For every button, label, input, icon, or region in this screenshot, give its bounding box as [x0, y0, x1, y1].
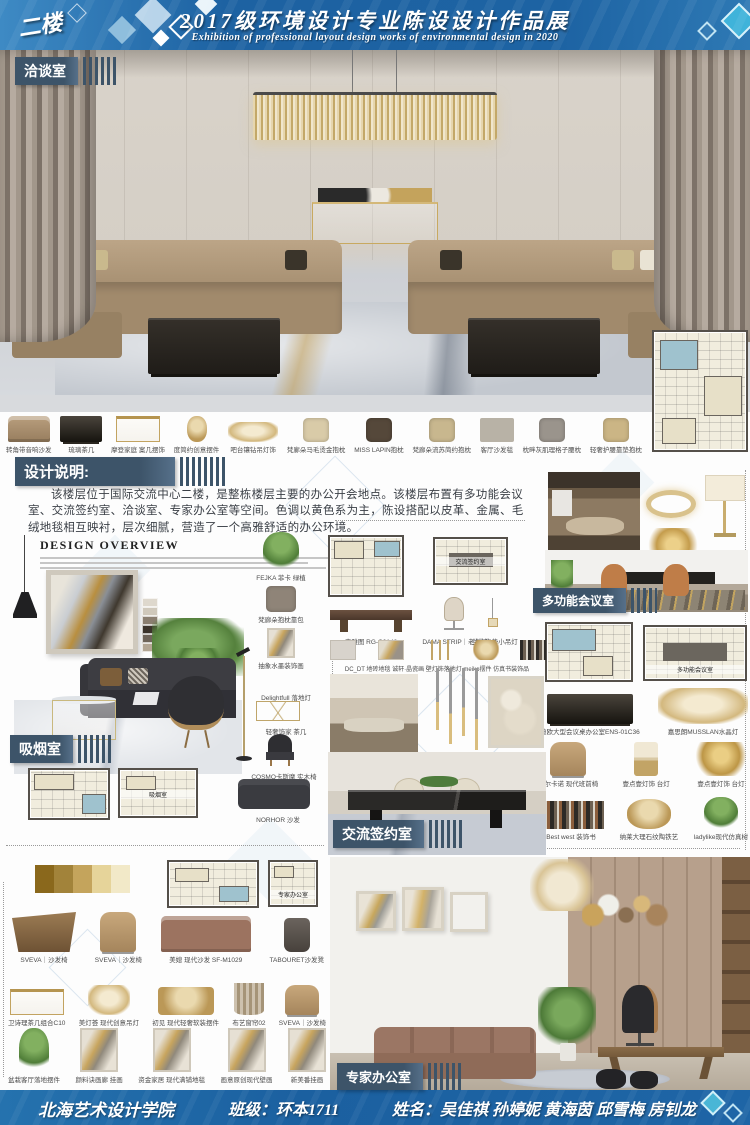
plan-room: [34, 774, 74, 790]
plan-room: [82, 794, 106, 814]
pillow-icon: [128, 668, 148, 684]
decor: [266, 752, 294, 760]
accessory-thumbs: [330, 640, 546, 660]
decor: [24, 535, 25, 593]
catalog-item-label: 美媳 现代沙发 SF-M1029: [169, 954, 242, 964]
catalog-item-thumb: [267, 628, 295, 658]
palette-swatch: [142, 598, 158, 607]
catalog-item: 美媳 现代沙发 SF-M1029: [161, 916, 251, 964]
furniture-item: 转角带音响沙发: [6, 416, 52, 454]
catalog-item: 科尔卡诺 现代班前椅: [538, 742, 598, 788]
plan-caption: 交流签约室: [435, 557, 506, 566]
decor: [449, 668, 452, 744]
furniture-item-thumb: [603, 418, 629, 442]
decor: [453, 621, 455, 628]
expert-office-render: [330, 857, 750, 1090]
furniture-item-thumb: [187, 416, 207, 442]
room-label-text: 专家办公室: [337, 1063, 423, 1090]
catalog-item-label: Best west 装饰书: [546, 831, 595, 841]
catalog-item: 资金家居 现代满铺地毯: [138, 1028, 205, 1084]
decor: [352, 50, 353, 95]
wall-art: [450, 892, 488, 932]
design-overview-heading: DESIGN OVERVIEW: [40, 538, 179, 553]
catalog-item-label: 纳莱大理石纹陶铁艺: [620, 831, 679, 841]
furniture-item: 度简约创意摆件: [174, 416, 220, 454]
furniture-item: 梵廊朵流苏简约抱枕: [412, 418, 471, 454]
plan-room: [552, 629, 596, 651]
decor: [462, 668, 465, 736]
coffee-table: [148, 318, 280, 374]
design-notes-label-text: 设计说明:: [15, 457, 175, 486]
catalog-item-thumb: [694, 742, 748, 776]
pillow-icon: [440, 250, 462, 270]
decor: [560, 1043, 576, 1061]
furniture-item-label: 琉璃茶几: [68, 444, 94, 454]
decor: [83, 57, 119, 85]
catalog-item-label: 颜料诀画廊 挂画: [75, 1074, 122, 1084]
plan-room: [126, 776, 156, 790]
room-label-signing: 交流签约室: [333, 820, 465, 848]
smoking-item-label: NORHOR 沙发: [248, 814, 308, 824]
design-notes-label: 设计说明:: [15, 457, 228, 486]
catalog-item: 梵廊朵抱枕靠包: [238, 586, 324, 624]
catalog-item-thumb: [704, 797, 738, 829]
catalog-item: 纳莱大理石纹陶铁艺: [620, 799, 679, 841]
decor: [6, 845, 324, 846]
furniture-item: 轻奢护腰靠垫抱枕: [590, 418, 642, 454]
multifunction-items-row3: Best west 装饰书 纳莱大理石纹陶铁艺 ladylike现代仿真树: [538, 797, 748, 841]
art-thumb: [378, 640, 404, 660]
floor-plan-thumbnail: [28, 768, 110, 820]
furniture-item-thumb: [8, 416, 50, 442]
decor: [344, 718, 404, 732]
furniture-item-label: 梵廊朵马毛烫金抱枕: [287, 444, 346, 454]
catalog-item: 新美番挂画: [288, 1028, 326, 1084]
ring-chandelier: [642, 482, 700, 528]
room-label-text: 交流签约室: [333, 820, 424, 848]
footer-banner: 北海艺术设计学院 班级：环本1711 姓名：吴佳祺 孙婷妮 黄海茵 邱雪梅 房钊…: [0, 1090, 750, 1125]
catalog-item: 初见 现代轻奢软装摆件: [152, 987, 219, 1027]
plan-caption: 吸烟室: [120, 790, 196, 799]
decor: [436, 668, 439, 730]
catalog-item-thumb: [627, 799, 671, 829]
conference-table-thumb: [330, 602, 412, 632]
floor-plan-thumbnail: [167, 860, 259, 908]
decor: [428, 1063, 464, 1090]
plan-caption: 专家办公室: [270, 890, 316, 899]
catalog-item-label: TABOURET沙发凳: [270, 954, 324, 964]
decor: [396, 50, 397, 95]
plant-icon: [420, 776, 458, 787]
decor: [330, 610, 412, 620]
catalog-item-label: 抽象水墨装饰画: [258, 660, 304, 670]
decor: [429, 820, 465, 848]
room-label-expert: 专家办公室: [337, 1063, 464, 1090]
room-label-text: 多功能会议室: [533, 588, 626, 613]
wire-coffee-table: [52, 700, 116, 740]
floor-plan-thumbnail: 吸烟室: [118, 768, 198, 818]
floor-plan-thumbnail: 专家办公室: [268, 860, 318, 907]
catalog-item-thumb: [284, 918, 310, 952]
catalog-item-thumb: [285, 985, 319, 1015]
stool-icon: [596, 1069, 626, 1089]
furniture-item-thumb: [60, 416, 102, 442]
curtain-left: [0, 50, 96, 342]
multifunction-items-row2: 科尔卡诺 现代班前椅 壹点壹灯饰 台灯 壹点壹灯饰 台灯: [538, 742, 748, 788]
stool-icon: [630, 1071, 658, 1089]
decor: [714, 533, 736, 537]
gold-palette: [35, 865, 130, 893]
decor: [699, 1057, 712, 1079]
catalog-item: 美灯荟 现代创意吊灯: [79, 985, 139, 1027]
coffee-table: [468, 318, 600, 374]
decor: [540, 848, 740, 849]
metal-circles-wall-decor: [582, 885, 670, 935]
small-pendant-thumb: [486, 598, 500, 630]
decor: [270, 760, 272, 766]
console-table: [312, 202, 438, 244]
furniture-item: 客厅沙发毯: [480, 418, 514, 454]
diamond-icon: [723, 1103, 743, 1123]
furniture-item: 吧台镶钻吊灯饰: [228, 422, 278, 454]
conference-room-photo: [330, 674, 418, 754]
decor: [243, 656, 245, 758]
decor: [78, 735, 114, 763]
furniture-item: 摩登家庭 案几摆饰: [111, 416, 165, 454]
plan-room: [219, 886, 249, 902]
plan-room: [274, 866, 294, 878]
catalog-item-label: 科尔卡诺 现代班前椅: [538, 778, 598, 788]
catalog-item-thumb: [658, 688, 748, 724]
crystal-chandelier: [253, 92, 497, 140]
catalog-item: SVEVA｜沙发椅: [95, 912, 142, 964]
catalog-item: FEJKA 菲卡 绿植: [238, 532, 324, 582]
wood-chair-icon: [262, 734, 298, 766]
wire-table-icon: [256, 701, 300, 721]
palette-swatch: [142, 607, 158, 616]
catalog-item-label: 画意原创现代壁画: [221, 1074, 273, 1084]
decor: [598, 1047, 724, 1057]
furniture-item-label: 客厅沙发毯: [481, 444, 514, 454]
console-decor-items: [318, 188, 432, 202]
footer-names: 姓名：吴佳祺 孙婷妮 黄海茵 邱雪梅 房钊龙: [392, 1096, 696, 1120]
catalog-item-label: 壹点壹灯饰 台灯: [697, 778, 744, 788]
catalog-item: 颜料诀画廊 挂画: [75, 1028, 122, 1084]
furniture-item-thumb: [480, 418, 514, 442]
catalog-item-label: 卫诗理茶几组合C10: [8, 1017, 65, 1027]
catalog-item-thumb: [88, 985, 130, 1015]
furniture-item-label: 度简约创意摆件: [174, 444, 220, 454]
catalog-item: Best west 装饰书: [538, 801, 604, 841]
plan-room: [334, 541, 364, 559]
decor: [538, 987, 596, 1045]
catalog-item-thumb: [266, 586, 296, 612]
furniture-item: 枕畔灰肌理格子腰枕: [523, 418, 582, 454]
plan-room: [662, 418, 696, 444]
catalog-item-label: FEJKA 菲卡 绿植: [256, 572, 305, 582]
floor-badge: 二楼: [16, 5, 64, 43]
furniture-strip: 转角带音响沙发 琉璃茶几 摩登家庭 案几摆饰 度简约创意摆件 吧台镶钻吊灯饰: [6, 416, 642, 454]
catalog-item-thumb: [100, 912, 136, 952]
catalog-item: ladylike现代仿真树: [694, 797, 748, 841]
decor: [236, 756, 252, 761]
catalog-item: TABOURET沙发凳: [270, 918, 324, 964]
books-thumb: [520, 640, 546, 660]
catalog-item: 画意原创现代壁画: [221, 1028, 273, 1084]
decor: [622, 985, 658, 1033]
catalog-item: 卫诗理茶几组合C10: [8, 989, 65, 1027]
decor: [180, 457, 228, 486]
decor: [723, 501, 726, 533]
pillow-icon: [100, 668, 122, 686]
furniture-item: 梵廊朵马毛烫金抱枕: [287, 418, 346, 454]
catalog-item-thumb: [161, 916, 251, 952]
catalog-item-label: SVEVA｜沙发椅: [20, 954, 67, 964]
palette-swatch: [35, 865, 54, 893]
pillow-icon: [285, 250, 307, 270]
negotiation-room-photo: [0, 50, 750, 412]
room-label-smoking: 吸烟室: [10, 735, 114, 763]
meeting-room-photo: [548, 472, 640, 560]
decor: [705, 475, 745, 501]
room-label-negotiation: 洽谈室: [15, 57, 119, 85]
catalog-item-thumb: [80, 1028, 118, 1072]
catalog-item-thumb: [158, 987, 214, 1015]
plan-room: [175, 868, 209, 882]
furniture-item-label: MISS LAPIN抱枕: [354, 444, 403, 454]
expert-items-row3: 盆栽客厅落地摆件 颜料诀画廊 挂画 资金家居 现代满铺地毯 画意原创现代壁画 新…: [8, 1028, 326, 1084]
furniture-item-thumb: [539, 418, 565, 442]
catalog-item-label: 盆栽客厅落地摆件: [8, 1074, 60, 1084]
catalog-item-label: 壹点壹灯饰 台灯: [623, 778, 670, 788]
catalog-item-thumb: [288, 1028, 326, 1072]
furniture-item-label: 吧台镶钻吊灯饰: [230, 444, 276, 454]
catalog-item-thumb: [634, 742, 658, 776]
wall-art: [402, 887, 444, 931]
decor: [488, 618, 498, 627]
decor: [475, 668, 478, 750]
furniture-item-label: 摩登家庭 案几摆饰: [111, 444, 165, 454]
boss-chair-thumb: [440, 597, 468, 631]
catalog-item-label: 梵廊朵抱枕靠包: [258, 614, 304, 624]
decor: [492, 598, 493, 618]
catalog-item: 嘉思朗MUSSLAN水晶灯: [658, 688, 748, 736]
pendant-lights-thumb: [430, 668, 482, 756]
poster-title: 2017级环境设计专业陈设设计作品展: [0, 5, 750, 35]
decor: [566, 517, 624, 535]
catalog-item-label: ladylike现代仿真树: [694, 831, 748, 841]
design-notes-paragraph: 该楼层位于国际交流中心二楼，是整栋楼层主要的办公开会地点。该楼层布置有多功能会议…: [28, 487, 533, 536]
floor-plan-thumbnail: [545, 622, 633, 682]
catalog-item-label: 资金家居 现代满铺地毯: [138, 1074, 205, 1084]
floor-lamp: [234, 650, 254, 768]
decor: [394, 620, 402, 632]
catalog-item-label: SVEVA｜沙发椅: [95, 954, 142, 964]
decor: [444, 628, 464, 630]
furniture-item-label: 枕畔灰肌理格子腰枕: [523, 444, 582, 454]
decor: [3, 882, 4, 1077]
catalog-item: SVEVA｜沙发椅: [279, 985, 326, 1027]
laptop-icon: [133, 692, 160, 705]
furniture-item-thumb: [303, 418, 329, 442]
relief-artwork: [488, 676, 544, 748]
room-label-multifunction: 多功能会议室: [533, 588, 657, 613]
decor: [490, 810, 502, 828]
furniture-item-thumb: [116, 416, 160, 442]
potted-plant: [538, 987, 596, 1063]
wall-art: [356, 891, 396, 931]
palette-swatch: [73, 865, 92, 893]
catalog-item: SVEVA｜沙发椅: [12, 912, 76, 964]
catalog-item-thumb: [10, 989, 64, 1015]
palette-swatch: [111, 865, 130, 893]
header-banner: 二楼 2017级环境设计专业陈设设计作品展 Exhibition of prof…: [0, 0, 750, 50]
catalog-item-thumb: [547, 694, 633, 724]
footer-school: 北海艺术设计学院: [38, 1096, 174, 1121]
decor: [288, 760, 290, 766]
catalog-item-thumb: [19, 1028, 49, 1072]
exhibition-poster: 二楼 2017级环境设计专业陈设设计作品展 Exhibition of prof…: [0, 0, 750, 1125]
catalog-item-thumb: [153, 1028, 191, 1072]
executive-chair: [614, 985, 666, 1047]
poster-subtitle: Exhibition of professional layout design…: [0, 32, 750, 43]
catalog-item: 布艺窗帘02: [232, 983, 265, 1027]
catalog-item-label: 布艺窗帘02: [232, 1017, 265, 1027]
catalog-item-thumb: [234, 983, 264, 1015]
catalog-item: 迪欧大型会议桌办公室ENS-01C36: [540, 694, 640, 736]
catalog-item-label: SVEVA｜沙发椅: [279, 1017, 326, 1027]
furniture-item-thumb: [429, 418, 455, 442]
plan-room: [660, 340, 698, 370]
floor-plan-thumbnail: [328, 535, 404, 597]
furniture-item-thumb: [366, 418, 392, 442]
catalog-item-thumb: [263, 532, 299, 570]
figurine-thumb: [473, 640, 499, 660]
marble-floor: [0, 395, 750, 412]
catalog-item-label: 迪欧大型会议桌办公室ENS-01C36: [540, 726, 640, 736]
furniture-item-label: 转角带音响沙发: [6, 444, 52, 454]
furniture-item-label: 轻奢护腰靠垫抱枕: [590, 444, 642, 454]
plan-room: [663, 643, 727, 661]
lights-thumb: [425, 640, 451, 660]
decor: [444, 597, 464, 621]
pillow-icon: [612, 250, 634, 270]
decor: [631, 588, 657, 613]
catalog-item-label: 新美番挂画: [291, 1074, 324, 1084]
room-label-text: 洽谈室: [15, 57, 78, 85]
multifunction-items-row1: 迪欧大型会议桌办公室ENS-01C36 嘉思朗MUSSLAN水晶灯: [540, 688, 748, 736]
catalog-item-label: 初见 现代轻奢软装摆件: [152, 1017, 219, 1027]
expert-items-row2: 卫诗理茶几组合C10 美灯荟 现代创意吊灯 初见 现代轻奢软装摆件 布艺窗帘02…: [8, 983, 326, 1027]
abstract-artwork: [46, 570, 138, 654]
shell-chair: [168, 676, 224, 730]
office-chair-icon: [663, 564, 689, 596]
catalog-item-thumb: [550, 742, 586, 776]
furniture-item-thumb: [228, 422, 278, 442]
catalog-item-thumb: [12, 912, 76, 952]
floor-plan-thumbnail: 多功能会议室: [643, 625, 747, 681]
decor: [268, 734, 292, 754]
plan-room: [704, 376, 742, 416]
pendant-lamp-icon: [13, 592, 37, 618]
catalog-item: 壹点壹灯饰 台灯: [694, 742, 748, 788]
floor-plan-thumbnail: 交流签约室: [433, 537, 508, 585]
diamond-icon: [700, 1090, 725, 1115]
room-label-text: 吸烟室: [10, 735, 73, 763]
plan-room: [583, 656, 613, 676]
furniture-item: MISS LAPIN抱枕: [354, 418, 403, 454]
catalog-item-thumb: [538, 801, 604, 829]
marble-table: [348, 790, 526, 810]
palette-swatch: [92, 865, 111, 893]
decor: [340, 620, 348, 632]
decor: [646, 490, 696, 518]
curtain-right: [654, 50, 750, 342]
table-lamp: [702, 473, 748, 543]
catalog-item: 壹点壹灯饰 台灯: [623, 742, 670, 788]
plan-caption: 多功能会议室: [645, 665, 745, 674]
norhor-sofa: [238, 779, 310, 809]
catalog-item-label: 嘉思朗MUSSLAN水晶灯: [668, 726, 738, 736]
catalog-item: 盆栽客厅落地摆件: [8, 1028, 60, 1084]
tile-thumb: [330, 640, 356, 660]
catalog-item-label: 美灯荟 现代创意吊灯: [79, 1017, 139, 1027]
furniture-item-label: 梵廊朵流苏简约抱枕: [412, 444, 471, 454]
catalog-item-thumb: [228, 1028, 266, 1072]
floor-plan-thumbnail: [652, 330, 748, 452]
palette-swatch: [54, 865, 73, 893]
decor: [552, 490, 572, 516]
plan-room: [374, 541, 400, 557]
expert-items-row1: SVEVA｜沙发椅 SVEVA｜沙发椅 美媳 现代沙发 SF-M1029 TAB…: [12, 912, 324, 964]
footer-class: 班级：环本1711: [228, 1096, 339, 1120]
furniture-item: 琉璃茶几: [60, 416, 102, 454]
